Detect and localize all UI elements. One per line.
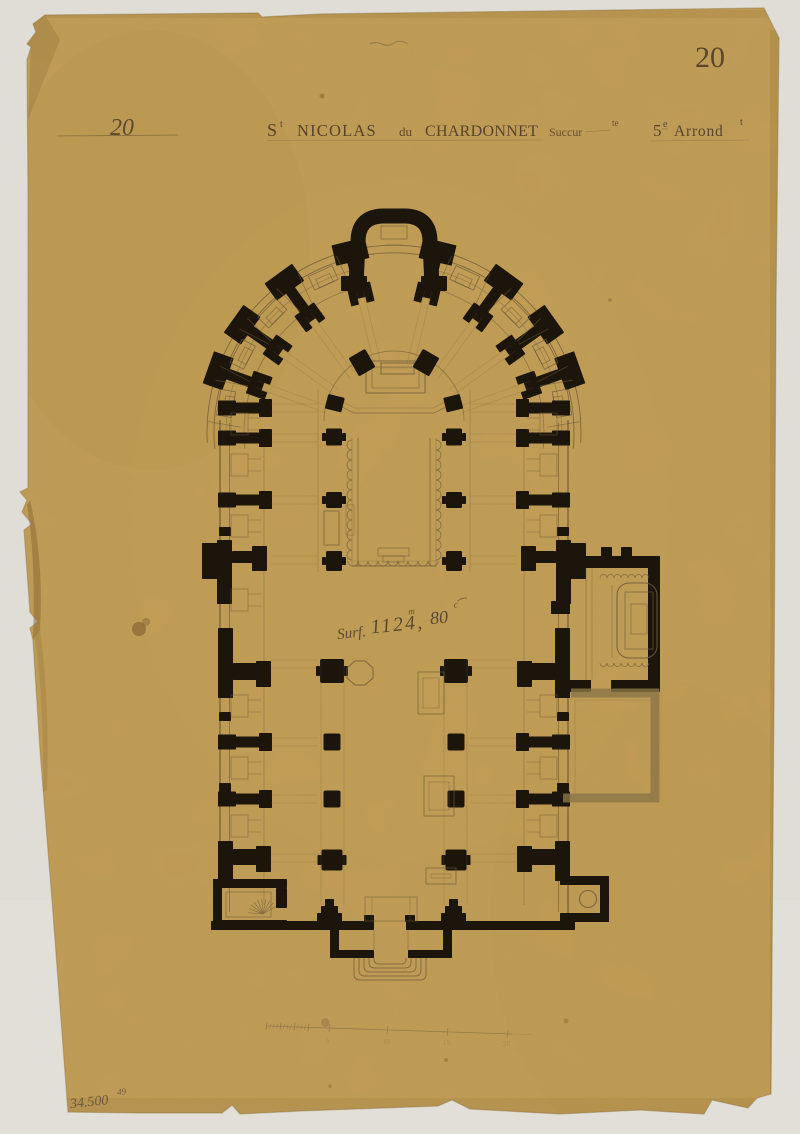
svg-text:NICOLAS: NICOLAS (297, 121, 377, 140)
svg-text:20: 20 (503, 1040, 511, 1048)
svg-text:20: 20 (695, 41, 725, 74)
svg-text:10: 10 (383, 1038, 391, 1046)
svg-text:Surf.: Surf. (336, 624, 366, 643)
svg-text:S: S (267, 120, 277, 140)
svg-text:15: 15 (443, 1039, 451, 1047)
svg-text:CHARDONNET: CHARDONNET (425, 123, 538, 140)
svg-text:Arrond: Arrond (674, 123, 724, 140)
svg-text:t: t (740, 117, 743, 128)
svg-text:Succur: Succur (549, 125, 582, 139)
svg-text:80: 80 (429, 607, 449, 629)
svg-text:49: 49 (117, 1086, 127, 1097)
svg-text:5: 5 (653, 121, 662, 140)
svg-text:20: 20 (110, 115, 134, 141)
svg-text:du: du (399, 124, 413, 139)
svg-text:te: te (612, 118, 619, 128)
svg-text:5: 5 (326, 1037, 330, 1045)
svg-text:t: t (280, 119, 283, 130)
svg-text:e: e (663, 119, 668, 130)
